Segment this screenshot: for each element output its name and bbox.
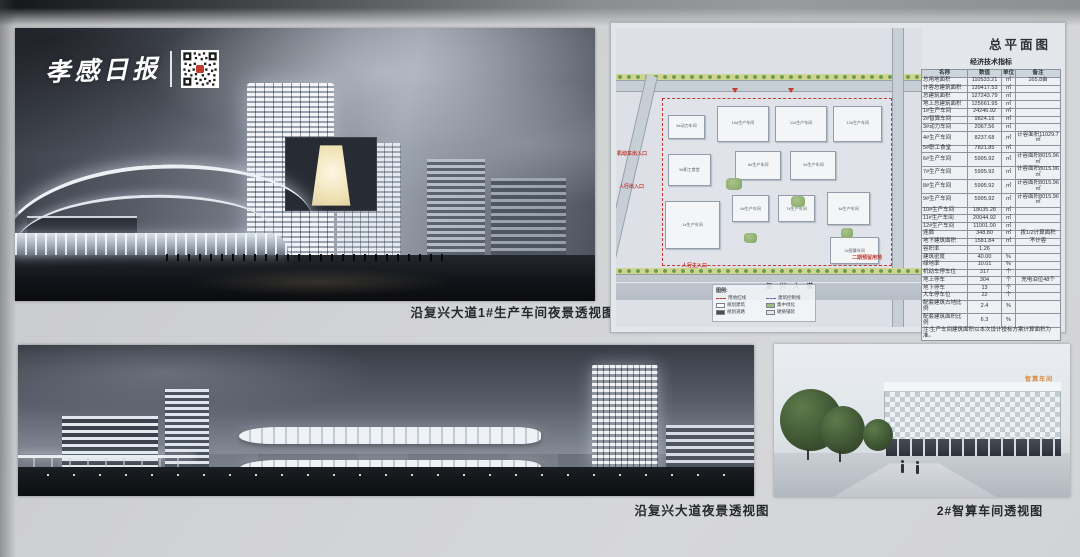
siteplan-panel: 总平面图 复兴大道 3#动力车间10#生产车间11#生产车间12#生产车间5#职…: [610, 22, 1066, 333]
table-cell: ㎡: [1002, 153, 1016, 167]
table-row: 7#生产车间5995.92㎡计容面积8015.96㎡: [922, 166, 1061, 180]
table-cell: 地上停车: [922, 277, 968, 285]
table-cell: ㎡: [1002, 207, 1016, 215]
table-row: 9#生产车间5995.92㎡计容面积8015.96㎡: [922, 194, 1061, 208]
plan-building: 3#动力车间: [668, 115, 705, 139]
table-cell: 个: [1002, 292, 1016, 300]
legend-swatch: [766, 298, 776, 299]
table-cell: 容积率: [922, 246, 968, 254]
table-cell: 2#智算车间: [922, 116, 968, 124]
rendering-day-workshop2: 智算车间: [774, 344, 1070, 497]
landscape-green: [726, 178, 742, 190]
table-cell: 总用地面积: [922, 77, 968, 85]
annotation-phase2-reserved: 二期预留用地: [852, 254, 882, 261]
table-footnote: 注:生产车间建筑面积以本次设计投标方案计算面积为准。: [922, 327, 1061, 341]
table-cell: [1016, 292, 1061, 300]
table-cell: 40.00: [968, 254, 1002, 262]
table-row: 绿地率10.01%: [922, 261, 1061, 269]
annotation-pedestrian-entrance: 人行出入口: [619, 183, 644, 190]
rendered-light-pool: [189, 268, 450, 295]
table-cell: ㎡: [1002, 166, 1016, 180]
tech-indicator-table: 经济技术指标 名称数值单位备注 总用地面积110533.21㎡165.8亩计容总…: [921, 57, 1061, 341]
table-cell: 6#生产车间: [922, 153, 968, 167]
landscape-green: [744, 233, 757, 243]
legend-item: 集中绿化: [766, 302, 812, 308]
table-cell: 317: [968, 269, 1002, 277]
table-cell: 9#生产车间: [922, 194, 968, 208]
tech-table-body: 总用地面积110533.21㎡165.8亩计容总建筑面积139417.53㎡总建…: [922, 77, 1061, 341]
table-cell: ㎡: [1002, 180, 1016, 194]
table-cell: 计容总建筑面积: [922, 85, 968, 93]
plan-building-label: 8#生产车间: [748, 163, 768, 167]
plan-building: 11#生产车间: [775, 106, 827, 142]
table-cell: ㎡: [1002, 194, 1016, 208]
table-cell: 139417.53: [968, 85, 1002, 93]
landscape-green: [791, 196, 805, 207]
table-cell: 8237.68: [968, 132, 1002, 146]
rendered-street-lights: [47, 474, 724, 476]
plan-building: 4#生产车间: [827, 192, 870, 225]
legend-label: 规划道路: [727, 309, 745, 315]
photo-left-shadow: [0, 0, 16, 557]
table-cell: 连廊: [922, 230, 968, 238]
publication-name: 孝感日报: [44, 49, 161, 89]
table-cell: ㎡: [1002, 108, 1016, 116]
table-cell: 5995.92: [968, 194, 1002, 208]
entrance-marker: [788, 88, 794, 93]
table-row: 配套建筑面积比例6.3%: [922, 314, 1061, 328]
table-cell: 1#生产车间: [922, 108, 968, 116]
table-cell: 计容面积8015.96㎡: [1016, 194, 1061, 208]
tree: [863, 419, 893, 451]
plan-building-label: 5#职工食堂: [679, 168, 699, 172]
table-cell: 按1/2计算面积: [1016, 230, 1061, 238]
plan-building: 8#生产车间: [735, 151, 781, 181]
siteplan-drawing: 复兴大道 3#动力车间10#生产车间11#生产车间12#生产车间5#职工食堂8#…: [616, 28, 922, 327]
annotation-pedestrian-main-entrance: 人行主入口: [682, 262, 707, 269]
table-cell: 9824.16: [968, 116, 1002, 124]
qr-code-icon: [181, 50, 219, 88]
table-cell: %: [1002, 261, 1016, 269]
table-cell: 配套建筑占地比例: [922, 300, 968, 314]
plan-building-label: 10#生产车间: [732, 121, 755, 125]
table-row: 配套建筑占地比例2.4%: [922, 300, 1061, 314]
table-cell: [1016, 314, 1061, 328]
table-cell: ㎡: [1002, 93, 1016, 101]
rendered-people: [166, 254, 444, 261]
legend-label: 硬质铺装: [777, 309, 795, 315]
table-cell: 计容面积8015.96㎡: [1016, 153, 1061, 167]
table-cell: 地下建筑面积: [922, 238, 968, 246]
table-cell: ㎡: [1002, 132, 1016, 146]
table-cell: 10.01: [968, 261, 1002, 269]
table-cell: 计容面积8015.96㎡: [1016, 166, 1061, 180]
table-cell: 不计容: [1016, 238, 1061, 246]
table-cell: 总建筑面积: [922, 93, 968, 101]
legend-title: 图例:: [716, 287, 812, 294]
table-cell: 10#生产车间: [922, 207, 968, 215]
table-cell: [1016, 85, 1061, 93]
table-row: 机动车停车位317个: [922, 269, 1061, 277]
table-cell: ㎡: [1002, 145, 1016, 153]
table-cell: 5995.92: [968, 180, 1002, 194]
plan-building-label: 9#生产车间: [803, 163, 823, 167]
table-cell: 计容面积8015.96㎡: [1016, 180, 1061, 194]
table-cell: ㎡: [1002, 77, 1016, 85]
table-cell: [1002, 246, 1016, 254]
logo-divider: [170, 51, 172, 87]
table-cell: ㎡: [1002, 230, 1016, 238]
table-cell: [1016, 207, 1061, 215]
table-cell: 5995.92: [968, 153, 1002, 167]
building-roof-band: [884, 382, 1062, 392]
table-row: 4#生产车间8237.68㎡计容面积11029.7㎡: [922, 132, 1061, 146]
caption-panorama: 沿复兴大道夜景透视图: [582, 500, 822, 519]
rendered-viaduct-piers: [33, 458, 195, 467]
plan-building-label: 11#生产车间: [790, 121, 812, 125]
table-cell: 11#生产车间: [922, 215, 968, 223]
table-cell: %: [1002, 254, 1016, 262]
table-row: 3#动力车间2067.56㎡: [922, 124, 1061, 132]
building-checker-facade: [884, 392, 1062, 439]
table-cell: 18035.28: [968, 207, 1002, 215]
table-cell: 20044.92: [968, 215, 1002, 223]
building-glass-base: [884, 439, 1062, 456]
table-cell: [1016, 124, 1061, 132]
tree-trunk: [839, 450, 841, 462]
table-row: 地下建筑面积1581.84㎡不计容: [922, 238, 1061, 246]
legend-swatch: [716, 310, 725, 315]
table-cell: 3#动力车间: [922, 124, 968, 132]
plan-building-label: 2#智算车间: [844, 249, 864, 253]
table-cell: [1016, 285, 1061, 293]
table-cell: ㎡: [1002, 124, 1016, 132]
table-cell: [1016, 215, 1061, 223]
plan-building-label: 1#生产车间: [682, 223, 702, 227]
table-cell: 7#生产车间: [922, 166, 968, 180]
presentation-board-photo: 孝感日报: [0, 0, 1080, 557]
legend-item: 规划道路: [716, 309, 762, 315]
plan-building: 5#职工食堂: [668, 154, 711, 187]
rendered-background-block: [427, 159, 485, 255]
table-cell: %: [1002, 300, 1016, 314]
rendered-wave-building: [239, 427, 541, 468]
table-footnote-row: 注:生产车间建筑面积以本次设计投标方案计算面积为准。: [922, 327, 1061, 341]
table-row: 建筑密度40.00%: [922, 254, 1061, 262]
table-cell: 304: [968, 277, 1002, 285]
table-row: 2#智算车间9824.16㎡: [922, 116, 1061, 124]
table-title: 经济技术指标: [921, 57, 1061, 67]
person-figure: [901, 464, 904, 473]
legend-label: 用地红线: [728, 295, 746, 301]
legend-swatch: [766, 310, 775, 315]
table-row: 总建筑面积127243.79㎡: [922, 93, 1061, 101]
table-cell: 348.80: [968, 230, 1002, 238]
table-cell: 充电泊位48个: [1016, 277, 1061, 285]
table-cell: 8#生产车间: [922, 180, 968, 194]
table-cell: [1016, 300, 1061, 314]
table-row: 1#生产车间24246.92㎡: [922, 108, 1061, 116]
table-cell: [1016, 101, 1061, 109]
table-cell: 个: [1002, 277, 1016, 285]
siteplan-title: 总平面图: [989, 34, 1051, 53]
table-cell: 机动车停车位: [922, 269, 968, 277]
table-row: 计容总建筑面积139417.53㎡: [922, 85, 1061, 93]
table-row: 地上停车304个充电泊位48个: [922, 277, 1061, 285]
plan-building-label: 3#动力车间: [676, 124, 696, 128]
building-layer: 3#动力车间10#生产车间11#生产车间12#生产车间5#职工食堂8#生产车间9…: [616, 28, 922, 327]
legend-item: 建筑控制线: [766, 295, 812, 301]
table-cell: 7821.85: [968, 145, 1002, 153]
plan-building: 1#生产车间: [665, 201, 720, 249]
legend-label: 建筑控制线: [778, 295, 801, 301]
table-cell: [1016, 254, 1061, 262]
plan-building: 9#生产车间: [790, 151, 836, 181]
table-cell: 5#职工食堂: [922, 145, 968, 153]
plan-building: 6#生产车间: [732, 195, 769, 222]
entrance-marker: [732, 88, 738, 93]
legend-swatch: [716, 303, 725, 308]
table-cell: [1016, 116, 1061, 124]
table-cell: [1016, 269, 1061, 277]
plan-building: 10#生产车间: [717, 106, 769, 142]
plan-building: 12#生产车间: [833, 106, 882, 142]
legend-label: 集中绿化: [777, 302, 795, 308]
person-figure: [916, 465, 919, 474]
legend-item: 规划建筑: [716, 302, 762, 308]
legend-swatch: [716, 298, 726, 299]
table-row: 总用地面积110533.21㎡165.8亩: [922, 77, 1061, 85]
legend-item: 用地红线: [716, 295, 762, 301]
caption-workshop2: 2#智算车间透视图: [900, 502, 1080, 519]
facade-ribbon: [239, 427, 541, 445]
table-row: 容积率1.26: [922, 246, 1061, 254]
table-cell: 4#生产车间: [922, 132, 968, 146]
table-cell: [1016, 246, 1061, 254]
rendered-ground: [18, 467, 754, 496]
table-cell: 110533.21: [968, 77, 1002, 85]
rendered-checker-building: 智算车间: [884, 382, 1062, 455]
rendered-tall-tower: [592, 365, 658, 468]
table-cell: 22: [968, 292, 1002, 300]
table-cell: 11001.00: [968, 223, 1002, 231]
tree: [821, 406, 865, 454]
legend-items: 用地红线建筑控制线规划建筑集中绿化规划道路硬质铺装: [716, 295, 812, 315]
table-cell: 2067.56: [968, 124, 1002, 132]
rendering-night-main: 孝感日报: [15, 28, 595, 301]
table-cell: 1581.84: [968, 238, 1002, 246]
table-cell: 5995.92: [968, 166, 1002, 180]
rendered-end-block: [666, 425, 754, 467]
table-cell: ㎡: [1002, 238, 1016, 246]
rendered-canopy-deck: [15, 233, 288, 255]
annotation-vehicle-entrance: 机动车出入口: [617, 150, 647, 157]
rendered-background-block: [491, 178, 566, 254]
plan-building-label: 7#生产车间: [786, 207, 806, 211]
table-row: 11#生产车间20044.92㎡: [922, 215, 1061, 223]
rendering-night-panorama: [18, 345, 754, 496]
glowing-facade: [297, 145, 366, 205]
legend-item: 硬质铺装: [766, 309, 812, 315]
table-row: 5#职工食堂7821.85㎡: [922, 145, 1061, 153]
table-column-header: 数值: [968, 70, 1002, 78]
table-row: 8#生产车间5995.92㎡计容面积8015.96㎡: [922, 180, 1061, 194]
publication-logo: 孝感日报: [45, 50, 219, 88]
table-cell: 125661.95: [968, 101, 1002, 109]
plan-building-label: 12#生产车间: [846, 121, 869, 125]
table-cell: 24246.92: [968, 108, 1002, 116]
table-cell: [1016, 108, 1061, 116]
table-cell: 绿地率: [922, 261, 968, 269]
caption-main-rendering: 沿复兴大道1#生产车间夜景透视图: [382, 302, 644, 321]
table-cell: [1016, 261, 1061, 269]
table-cell: 计容面积11029.7㎡: [1016, 132, 1061, 146]
table-cell: [1016, 145, 1061, 153]
legend-swatch: [766, 303, 775, 308]
table-cell: 127243.79: [968, 93, 1002, 101]
table-cell: %: [1002, 314, 1016, 328]
table-cell: ㎡: [1002, 116, 1016, 124]
table-row: 10#生产车间18035.28㎡: [922, 207, 1061, 215]
tree-trunk: [807, 448, 809, 460]
table-cell: 165.8亩: [1016, 77, 1061, 85]
table-cell: 6.3: [968, 314, 1002, 328]
table-cell: 个: [1002, 269, 1016, 277]
table-cell: 1.26: [968, 246, 1002, 254]
table-cell: ㎡: [1002, 215, 1016, 223]
table-cell: 配套建筑面积比例: [922, 314, 968, 328]
table-row: 6#生产车间5995.92㎡计容面积8015.96㎡: [922, 153, 1061, 167]
legend-label: 规划建筑: [727, 302, 745, 308]
table-row: 连廊348.80㎡按1/2计算面积: [922, 230, 1061, 238]
table-cell: 13: [968, 285, 1002, 293]
table-cell: [1016, 93, 1061, 101]
plan-legend: 图例: 用地红线建筑控制线规划建筑集中绿化规划道路硬质铺装: [712, 284, 816, 322]
plan-building-label: 4#生产车间: [838, 207, 858, 211]
table-cell: ㎡: [1002, 85, 1016, 93]
landscape-green: [841, 228, 853, 238]
plan-building-label: 6#生产车间: [740, 207, 760, 211]
table-cell: 2.4: [968, 300, 1002, 314]
